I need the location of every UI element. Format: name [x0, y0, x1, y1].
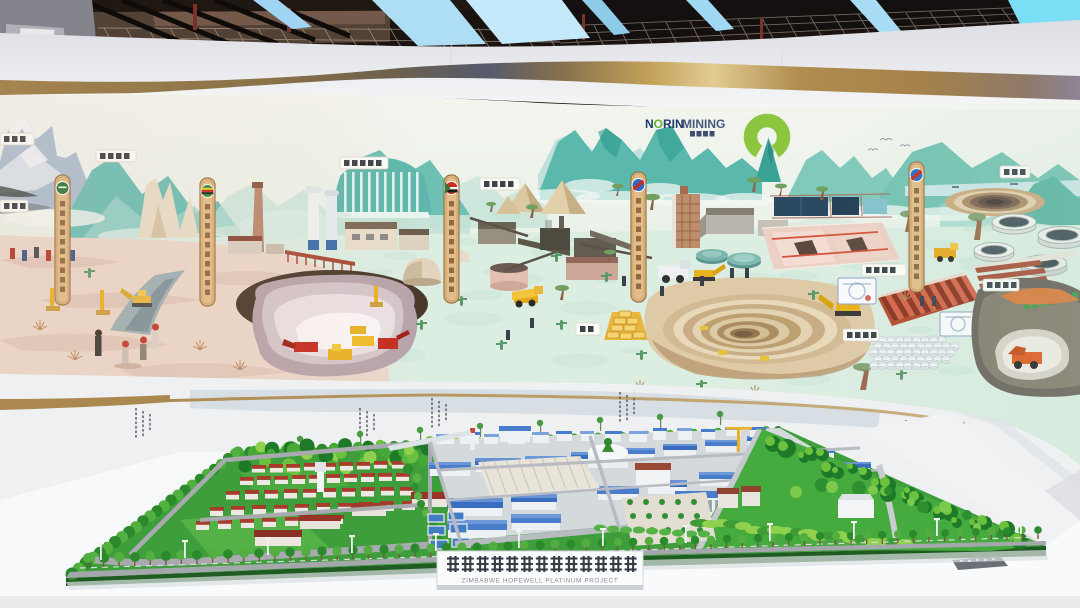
svg-text:ZIMBABWE HOPEWELL PLATINUM PRO: ZIMBABWE HOPEWELL PLATINUM PROJECT [462, 578, 619, 585]
svg-text:MINING: MINING [682, 117, 725, 131]
svg-text:NORIN: NORIN [645, 117, 684, 131]
